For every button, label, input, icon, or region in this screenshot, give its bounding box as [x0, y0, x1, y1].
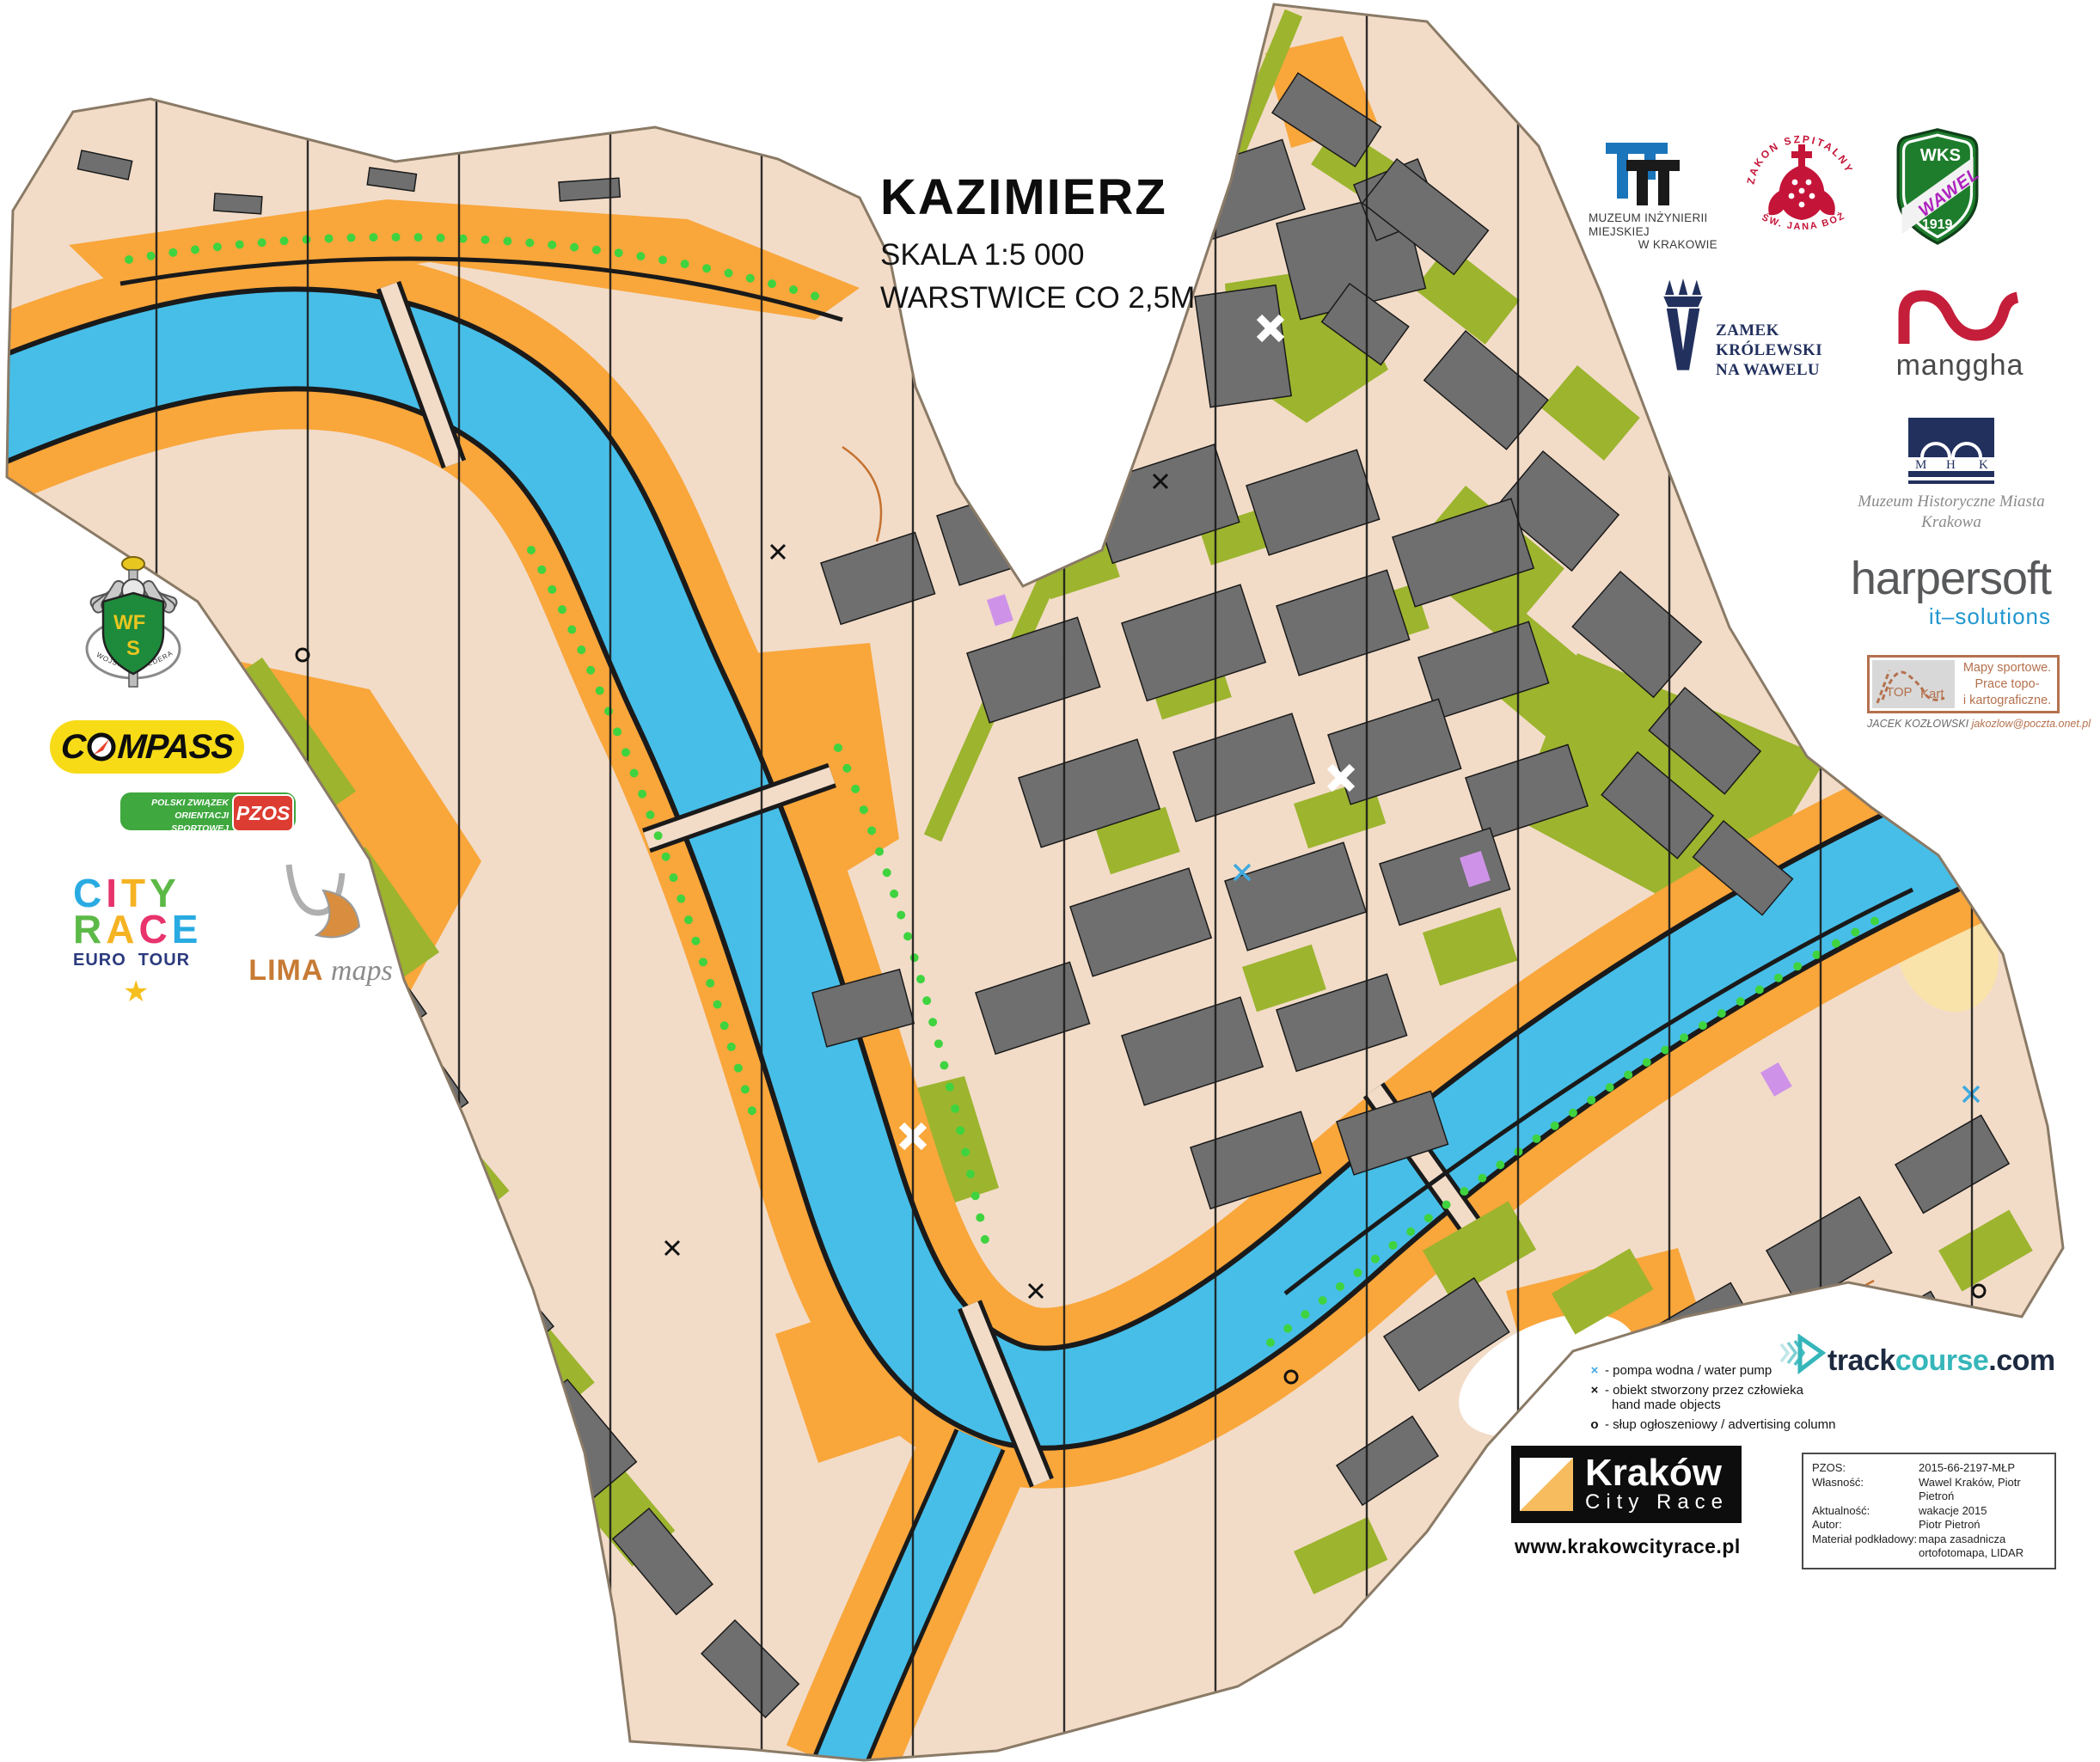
- credit-value: mapa zasadnicza: [1919, 1533, 2046, 1547]
- mim-line1: MUZEUM INŻYNIERII: [1589, 211, 1717, 225]
- star-icon: ★: [123, 975, 149, 1009]
- man-made-symbol: ×: [1584, 1383, 1605, 1398]
- year-text: 1919: [1922, 217, 1953, 232]
- credit-value: ortofotomapa, LIDAR: [1919, 1546, 2046, 1561]
- credit-label: Własność:: [1812, 1476, 1919, 1504]
- mim-line2: MIEJSKIEJ: [1589, 225, 1717, 239]
- manggha-text: manggha: [1891, 349, 2029, 382]
- trackcourse-icon: [1778, 1334, 1826, 1377]
- logo-muzeum-inzynierii: MUZEUM INŻYNIERII MIEJSKIEJ W KRAKOWIE: [1589, 134, 1717, 252]
- topkart-line3: i kartograficzne.: [1957, 693, 2057, 709]
- wfs-s: S: [126, 637, 140, 660]
- credit-label: PZOS:: [1812, 1461, 1919, 1476]
- compass-rest: MPASS: [116, 728, 234, 767]
- logo-zamek-krolewski: ZAMEK KRÓLEWSKI NA WAWELU: [1659, 272, 1822, 380]
- logo-topkart: TOP Kart Mapy sportowe. Prace topo- i ka…: [1867, 655, 2060, 730]
- pomegranate-cross-icon: [1768, 144, 1835, 220]
- credit-value: Wawel Kraków, Piotr Pietroń: [1919, 1476, 2046, 1504]
- harpersoft-name: harpersoft: [1795, 555, 2051, 602]
- gate-icon: [1601, 134, 1687, 208]
- topkart-author: JACEK KOZŁOWSKI: [1867, 718, 1968, 730]
- legend-item-man-made: - obiekt stworzony przez człowieka: [1605, 1383, 1803, 1398]
- trackcourse-course: course: [1895, 1344, 1989, 1377]
- credit-label: Aktualność:: [1812, 1504, 1919, 1519]
- lima-name: LIMA: [248, 954, 323, 987]
- map-sheet: KAZIMIERZ SKALA 1:5 000 WARSTWICE CO 2,5…: [0, 0, 2100, 1762]
- credit-value: 2015-66-2197-MŁP: [1919, 1461, 2046, 1476]
- map-scale: SKALA 1:5 000: [880, 235, 1195, 276]
- logo-compass: C MPASS: [50, 720, 244, 774]
- logo-mhk: M H K Muzeum Historyczne Miasta Krakowa: [1840, 418, 2063, 533]
- topkart-top: TOP: [1886, 685, 1913, 700]
- kcr-sub: City Race: [1585, 1491, 1729, 1514]
- harpersoft-sub: it–solutions: [1795, 603, 2051, 630]
- mhk-k: K: [1979, 458, 1988, 472]
- logo-trackcourse: trackcourse.com: [1778, 1334, 2055, 1377]
- wfs-wf: WF: [113, 611, 145, 634]
- mhk-m: M: [1915, 458, 1926, 472]
- compass-icon: [87, 732, 116, 762]
- credit-label: Materiał podkładowy:: [1812, 1533, 1919, 1547]
- mhk-h: H: [1946, 458, 1956, 472]
- compass-c: C: [59, 728, 86, 767]
- cityrace-word1: CITY: [73, 875, 211, 911]
- tour-text: TOUR: [138, 951, 190, 970]
- topkart-email: jakozlow@poczta.onet.pl: [1972, 718, 2091, 730]
- zamek-line2: KRÓLEWSKI: [1716, 340, 1822, 360]
- legend-item-man-made-en: hand made objects: [1612, 1398, 1835, 1413]
- logo-city-race-euro-tour: CITY RACE EURO TOUR ★: [73, 875, 211, 970]
- crown-w-icon: [1659, 272, 1707, 380]
- credit-value: Piotr Pietroń: [1919, 1518, 2046, 1533]
- logo-wks-wawel: WKS WAWEL 1919: [1896, 127, 1979, 248]
- credit-value: wakacje 2015: [1919, 1504, 2046, 1519]
- trackcourse-com: .com: [1988, 1344, 2054, 1377]
- topkart-box: TOP Kart Mapy sportowe. Prace topo- i ka…: [1867, 655, 2060, 713]
- topkart-kart: Kart: [1920, 687, 1944, 701]
- logo-zakon-szpitalny: ZAKON SZPITALNY ŚW. JANA BOŻEGO: [1735, 120, 1869, 254]
- wave-icon: [1895, 285, 2024, 347]
- pzos-line1: POLSKI ZWIĄZEK: [127, 797, 229, 810]
- arches-icon: M H K: [1908, 418, 1994, 485]
- credits-table: PZOS:2015-66-2197-MŁP Własność:Wawel Kra…: [1802, 1453, 2056, 1569]
- map-contour-interval: WARSTWICE CO 2,5M: [880, 278, 1195, 319]
- logo-pzos: POLSKI ZWIĄZEK ORIENTACJI SPORTOWEJ PZOS: [119, 791, 297, 832]
- kcr-name: Kraków: [1585, 1455, 1729, 1491]
- water-pump-symbol: ×: [1584, 1363, 1605, 1379]
- map-title-block: KAZIMIERZ SKALA 1:5 000 WARSTWICE CO 2,5…: [880, 172, 1195, 319]
- credit-label: Autor:: [1812, 1518, 1919, 1533]
- mhk-line2: Krakowa: [1840, 512, 2063, 533]
- pzos-line2: ORIENTACJI SPORTOWEJ: [127, 810, 229, 835]
- logo-lima-maps: LIMA maps: [239, 860, 402, 988]
- wks-text: WKS: [1920, 146, 1961, 165]
- legend-item-advertising-column: - słup ogłoszeniowy / advertising column: [1605, 1417, 1835, 1433]
- zamek-line3: NA WAWELU: [1716, 360, 1822, 380]
- topkart-icon: TOP Kart: [1872, 660, 1955, 708]
- topkart-line2: Prace topo-: [1957, 676, 2057, 693]
- zamek-line1: ZAMEK: [1716, 321, 1822, 340]
- advertising-column-symbol: o: [1584, 1417, 1605, 1433]
- lima-sub: maps: [323, 955, 392, 987]
- logo-harpersoft: harpersoft it–solutions: [1795, 555, 2051, 630]
- euro-text: EURO: [73, 951, 126, 970]
- map-title: KAZIMIERZ: [880, 172, 1195, 224]
- legend-item-water-pump: - pompa wodna / water pump: [1605, 1363, 1772, 1379]
- logo-wfs: WOJSKOWA FEDERACJA SPORTU WF S: [76, 507, 192, 692]
- trackcourse-track: track: [1828, 1344, 1895, 1377]
- pzos-abbr: PZOS: [232, 794, 294, 832]
- lima-icon: [263, 860, 379, 952]
- credit-label: [1812, 1546, 1919, 1561]
- mim-line3: W KRAKOWIE: [1589, 238, 1717, 252]
- event-website: www.krakowcityrace.pl: [1515, 1535, 1741, 1558]
- logo-krakow-city-race: Kraków City Race: [1511, 1446, 1742, 1523]
- cityrace-word2: RACE: [73, 911, 211, 947]
- mhk-line1: Muzeum Historyczne Miasta: [1840, 492, 2063, 512]
- logo-manggha: manggha: [1891, 285, 2029, 382]
- orienteering-flag-icon: [1520, 1458, 1573, 1511]
- topkart-line1: Mapy sportowe.: [1957, 660, 2057, 676]
